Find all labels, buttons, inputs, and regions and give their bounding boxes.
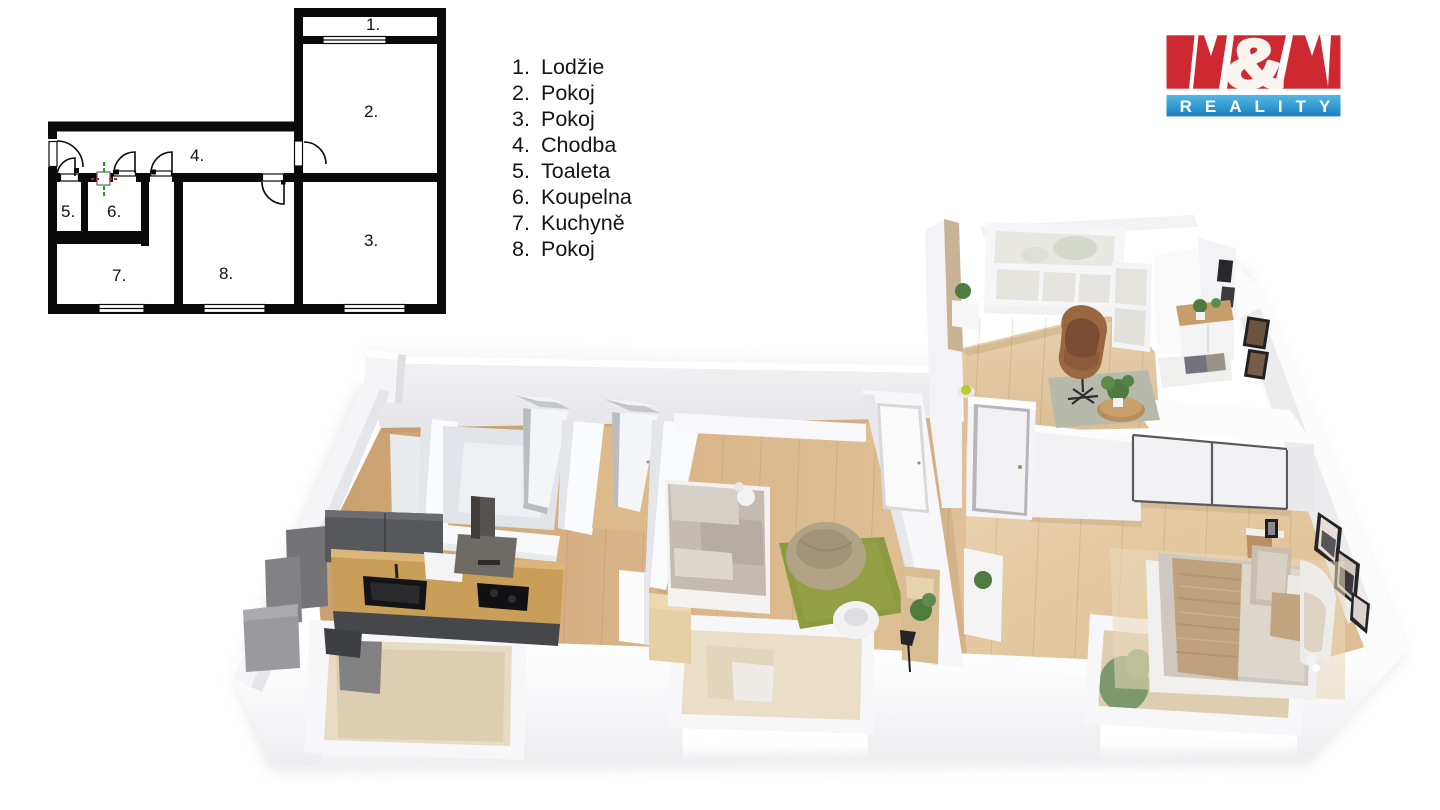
svg-text:1.: 1. xyxy=(366,15,380,34)
svg-text:7.: 7. xyxy=(112,266,126,285)
svg-text:6.: 6. xyxy=(512,185,530,209)
svg-text:8.: 8. xyxy=(219,264,233,283)
svg-text:Pokoj: Pokoj xyxy=(541,237,595,261)
svg-text:2.: 2. xyxy=(364,102,378,121)
svg-text:1.: 1. xyxy=(512,55,530,79)
svg-text:3.: 3. xyxy=(512,107,530,131)
svg-text:3.: 3. xyxy=(364,231,378,250)
svg-text:Pokoj: Pokoj xyxy=(541,81,595,105)
svg-text:Kuchyně: Kuchyně xyxy=(541,211,625,235)
svg-text:5.: 5. xyxy=(61,202,75,221)
svg-text:&: & xyxy=(1225,25,1284,102)
svg-text:2.: 2. xyxy=(512,81,530,105)
svg-text:Lodžie: Lodžie xyxy=(541,55,604,79)
svg-text:5.: 5. xyxy=(512,159,530,183)
svg-text:6.: 6. xyxy=(107,202,121,221)
svg-text:Toaleta: Toaleta xyxy=(541,159,610,183)
svg-text:7.: 7. xyxy=(512,211,530,235)
svg-text:Koupelna: Koupelna xyxy=(541,185,632,209)
svg-text:REALITY: REALITY xyxy=(1180,97,1344,116)
svg-text:Pokoj: Pokoj xyxy=(541,107,595,131)
svg-text:8.: 8. xyxy=(512,237,530,261)
svg-text:4.: 4. xyxy=(512,133,530,157)
svg-text:4.: 4. xyxy=(190,146,204,165)
svg-text:Chodba: Chodba xyxy=(541,133,616,157)
